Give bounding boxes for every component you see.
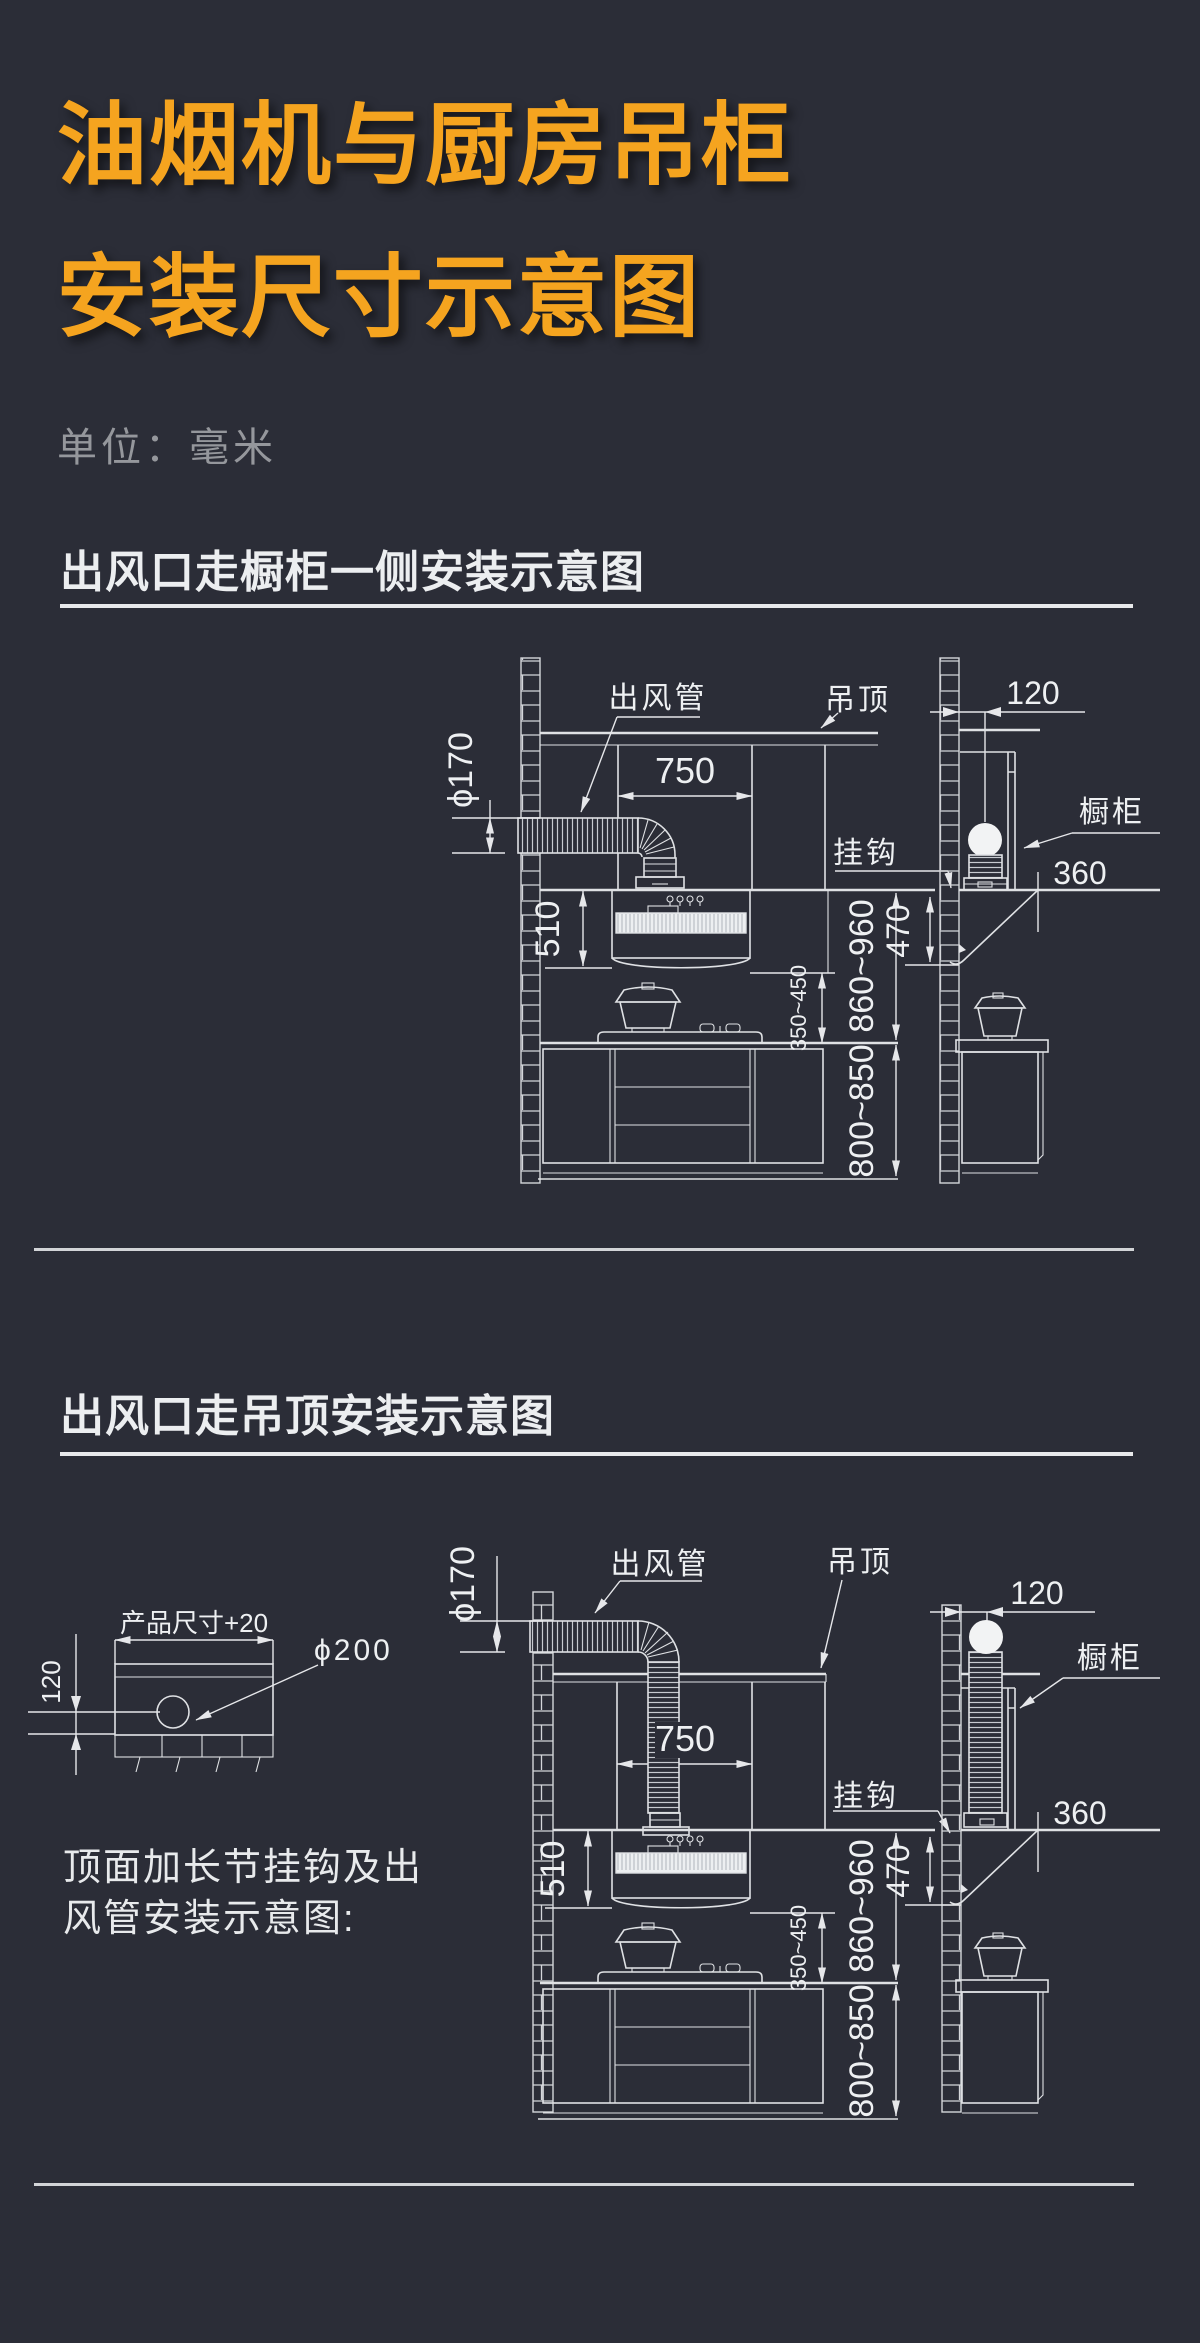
d1-range-hood-front <box>612 890 750 968</box>
d1-label-ceiling: 吊顶 <box>821 684 891 728</box>
d1-side-view: 120 橱柜 360 <box>880 658 1160 1183</box>
d2-side-base-cabinet <box>956 1980 1048 2113</box>
sm-duct-hole <box>157 1696 189 1728</box>
d1-duct-bend-ribs <box>640 820 674 854</box>
caption-line2: 风管安装示意图: <box>63 1894 423 1945</box>
d1-side-hood-profile <box>950 890 1038 964</box>
svg-text:ϕ200: ϕ200 <box>314 1634 393 1667</box>
section2-heading: 出风口走吊顶安装示意图 <box>60 1380 555 1444</box>
svg-text:360: 360 <box>1053 1795 1106 1831</box>
svg-text:橱柜: 橱柜 <box>1077 1642 1143 1675</box>
d1-upper-cabinet-lines <box>618 745 825 890</box>
svg-text:350~450: 350~450 <box>786 1905 811 1991</box>
svg-text:ϕ170: ϕ170 <box>444 1546 482 1622</box>
sm-dim-offset-120: 120 <box>28 1634 160 1775</box>
bottom-divider <box>34 2183 1134 2186</box>
page-title-line1: 油烟机与厨房吊柜 <box>57 70 793 222</box>
svg-text:800~850: 800~850 <box>843 1984 881 2117</box>
d1-label-duct: 出风管 <box>581 682 708 812</box>
diagram1-cabinet-side-install: 750 <box>440 630 1160 1270</box>
small-diagram-caption: 顶面加长节挂钩及出 风管安装示意图: <box>63 1843 423 1945</box>
d2-label-duct: 出风管 <box>595 1548 710 1613</box>
sm-dim-product-width: 产品尺寸+20 <box>115 1608 273 1664</box>
svg-text:350~450: 350~450 <box>786 965 811 1051</box>
section2-rule <box>60 1452 1133 1456</box>
d1-duct-collar <box>644 858 676 877</box>
d1-side-base-cabinet <box>956 1040 1048 1173</box>
svg-text:产品尺寸+20: 产品尺寸+20 <box>120 1608 268 1638</box>
svg-text:470: 470 <box>880 1844 916 1897</box>
d1-hood-glass-panel <box>616 913 746 933</box>
d1-burner <box>700 1024 714 1032</box>
svg-text:120: 120 <box>36 1660 66 1703</box>
d1-dim-510: 510 <box>529 891 612 968</box>
section1-heading: 出风口走橱柜一侧安装示意图 <box>60 536 645 600</box>
page: 油烟机与厨房吊柜 安装尺寸示意图 单位：毫米 出风口走橱柜一侧安装示意图 750 <box>0 0 1200 2343</box>
svg-text:470: 470 <box>880 904 916 957</box>
d2-side-view: 120 橱柜 360 <box>880 1575 1160 2113</box>
d2-label-hook: 挂钩 <box>833 1780 950 1833</box>
svg-text:120: 120 <box>1010 1575 1063 1611</box>
d2-wall-left-upper <box>533 1592 553 1620</box>
svg-text:510: 510 <box>529 901 567 958</box>
d2-side-duct <box>964 1652 1007 1827</box>
section-divider <box>34 1248 1134 1251</box>
unit-note: 单位：毫米 <box>57 415 277 473</box>
svg-text:挂钩: 挂钩 <box>833 1780 899 1813</box>
d1-label-hook: 挂钩 <box>833 837 951 888</box>
svg-text:360: 360 <box>1053 855 1106 891</box>
d2-range-hood-front <box>612 1830 750 1908</box>
d1-stove-front <box>598 983 762 1042</box>
svg-text:出风管: 出风管 <box>609 682 708 715</box>
d1-side-stove-pot <box>975 993 1025 1040</box>
d1-dim-dia170-label: ϕ170 <box>442 732 480 808</box>
d2-wall-hook-icon <box>961 1884 968 1893</box>
svg-text:吊顶: 吊顶 <box>825 684 891 717</box>
d2-dim-750: 750 <box>655 1718 715 1759</box>
d1-burner <box>726 1024 740 1032</box>
svg-text:120: 120 <box>1006 675 1059 711</box>
svg-text:橱柜: 橱柜 <box>1079 796 1145 829</box>
d1-wall-left-upper <box>521 658 540 818</box>
d2-side-stove-pot <box>975 1933 1025 1980</box>
d1-label-cabinet: 橱柜 <box>1024 796 1160 848</box>
d2-duct-ball-outlet <box>969 1620 1003 1654</box>
d1-duct-ball-outlet <box>968 823 1002 857</box>
svg-text:800~850: 800~850 <box>843 1044 881 1177</box>
diagram2-ceiling-install: 750 <box>440 1520 1160 2230</box>
d2-stove-front <box>598 1923 762 1982</box>
svg-text:挂钩: 挂钩 <box>833 837 899 870</box>
d2-dim-dia170: ϕ170 <box>444 1546 543 1652</box>
d2-annotations: ϕ170 出风管 吊顶 挂钩 510 <box>444 1546 950 2118</box>
sm-wall-band <box>115 1735 273 1757</box>
sm-cabinet-top-panel <box>115 1664 273 1772</box>
d1-wall-hook-icon <box>959 944 966 953</box>
d2-hood-lights <box>667 1836 703 1846</box>
d1-hood-lights <box>667 896 703 906</box>
top-surface-cutout-diagram: 产品尺寸+20 120 ϕ200 <box>20 1560 440 1820</box>
d2-side-hood-profile <box>950 1830 1038 1904</box>
page-title-line2: 安装尺寸示意图 <box>57 222 793 374</box>
d2-hood-glass-panel <box>616 1853 746 1873</box>
svg-text:860~960: 860~960 <box>843 1839 881 1972</box>
section1-rule <box>60 604 1133 608</box>
d2-dim-510: 510 <box>534 1831 612 1908</box>
d1-side-duct <box>964 855 1007 890</box>
page-title: 油烟机与厨房吊柜 安装尺寸示意图 <box>57 70 793 374</box>
d2-label-ceiling: 吊顶 <box>821 1546 893 1668</box>
d2-label-cabinet: 橱柜 <box>1020 1642 1160 1708</box>
svg-text:吊顶: 吊顶 <box>827 1546 893 1579</box>
d1-pot-body <box>620 1002 676 1028</box>
svg-text:出风管: 出风管 <box>611 1548 710 1581</box>
d1-wall-side <box>940 658 959 1183</box>
d1-dim-750: 750 <box>618 750 752 796</box>
svg-text:510: 510 <box>534 1841 572 1898</box>
caption-line1: 顶面加长节挂钩及出 <box>63 1843 423 1894</box>
d2-wall-side <box>942 1605 961 2112</box>
d1-dim-800-850: 800~850 <box>843 1044 896 1177</box>
d2-dim-800-850: 800~850 <box>843 1984 896 2117</box>
d2-dim-750-label: 750 <box>655 1718 715 1759</box>
d1-exhaust-duct <box>518 818 684 888</box>
d1-dim-750-label: 750 <box>655 750 715 791</box>
svg-text:860~960: 860~960 <box>843 899 881 1032</box>
